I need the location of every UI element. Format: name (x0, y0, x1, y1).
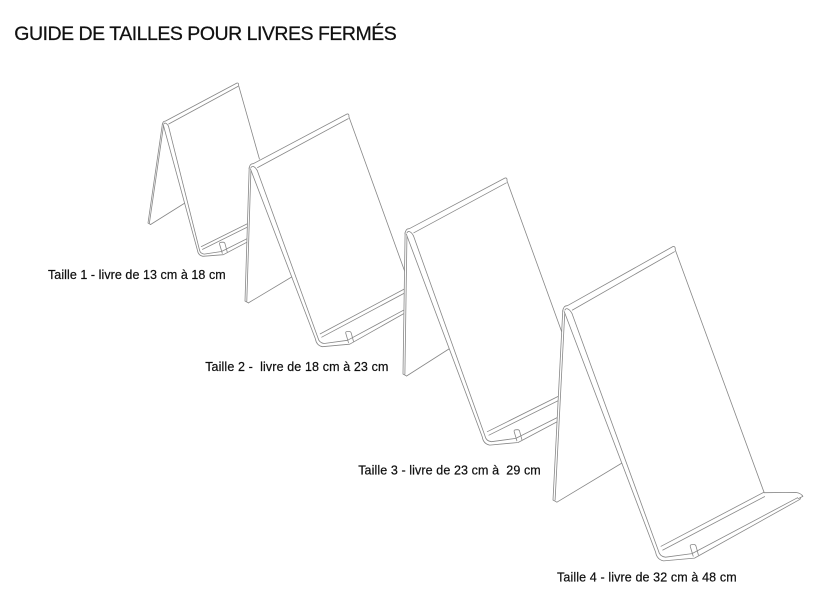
svg-text:Taille 3 - livre de 23 cm à 2: Taille 3 - livre de 23 cm à 29 cm (358, 464, 541, 478)
svg-text:Taille 2 - livre de 18 cm à 2: Taille 2 - livre de 18 cm à 23 cm (205, 360, 388, 374)
svg-text:GUIDE DE TAILLES POUR LIVRES F: GUIDE DE TAILLES POUR LIVRES FERMÉS (14, 22, 396, 45)
svg-text:Taille 4 - livre de 32 cm à 48: Taille 4 - livre de 32 cm à 48 cm (557, 571, 737, 585)
svg-text:Taille 1 - livre de 13 cm à 18: Taille 1 - livre de 13 cm à 18 cm (48, 268, 226, 282)
